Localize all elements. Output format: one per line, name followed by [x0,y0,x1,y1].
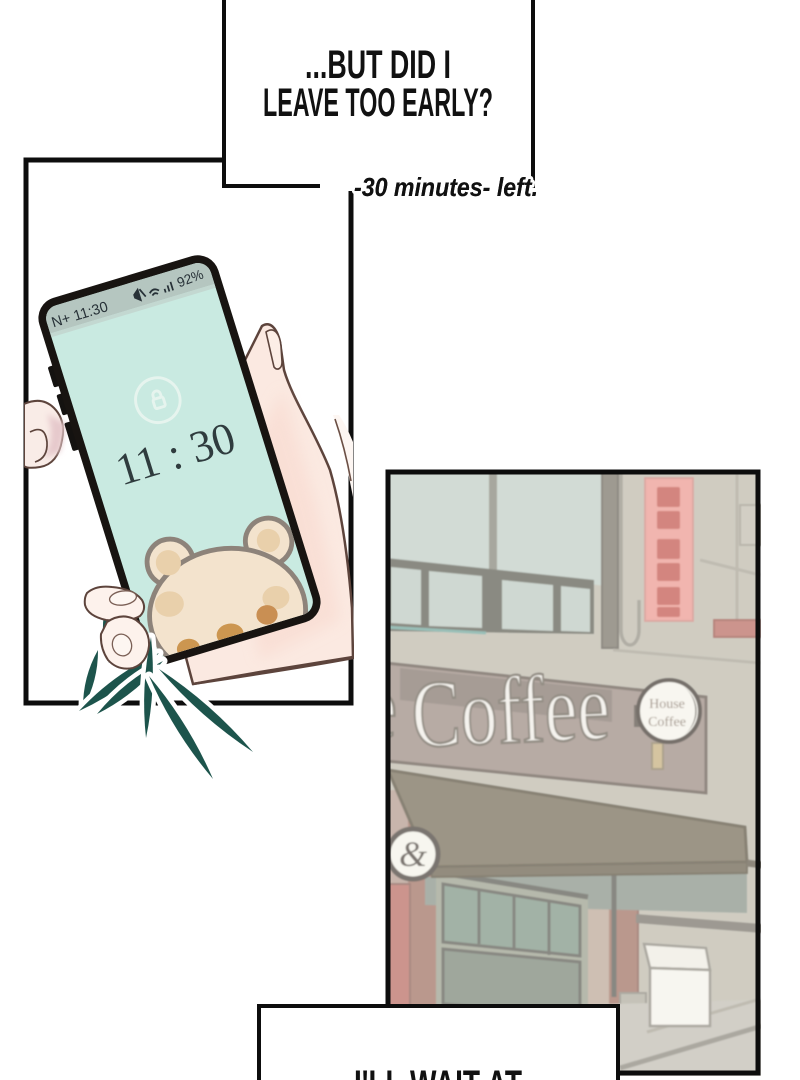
svg-text:-30 minutes- left.: -30 minutes- left. [354,172,538,202]
svg-text:LEAVE TOO EARLY?: LEAVE TOO EARLY? [263,81,493,125]
svg-text:I'LL WAIT AT: I'LL WAIT AT [354,1063,522,1080]
